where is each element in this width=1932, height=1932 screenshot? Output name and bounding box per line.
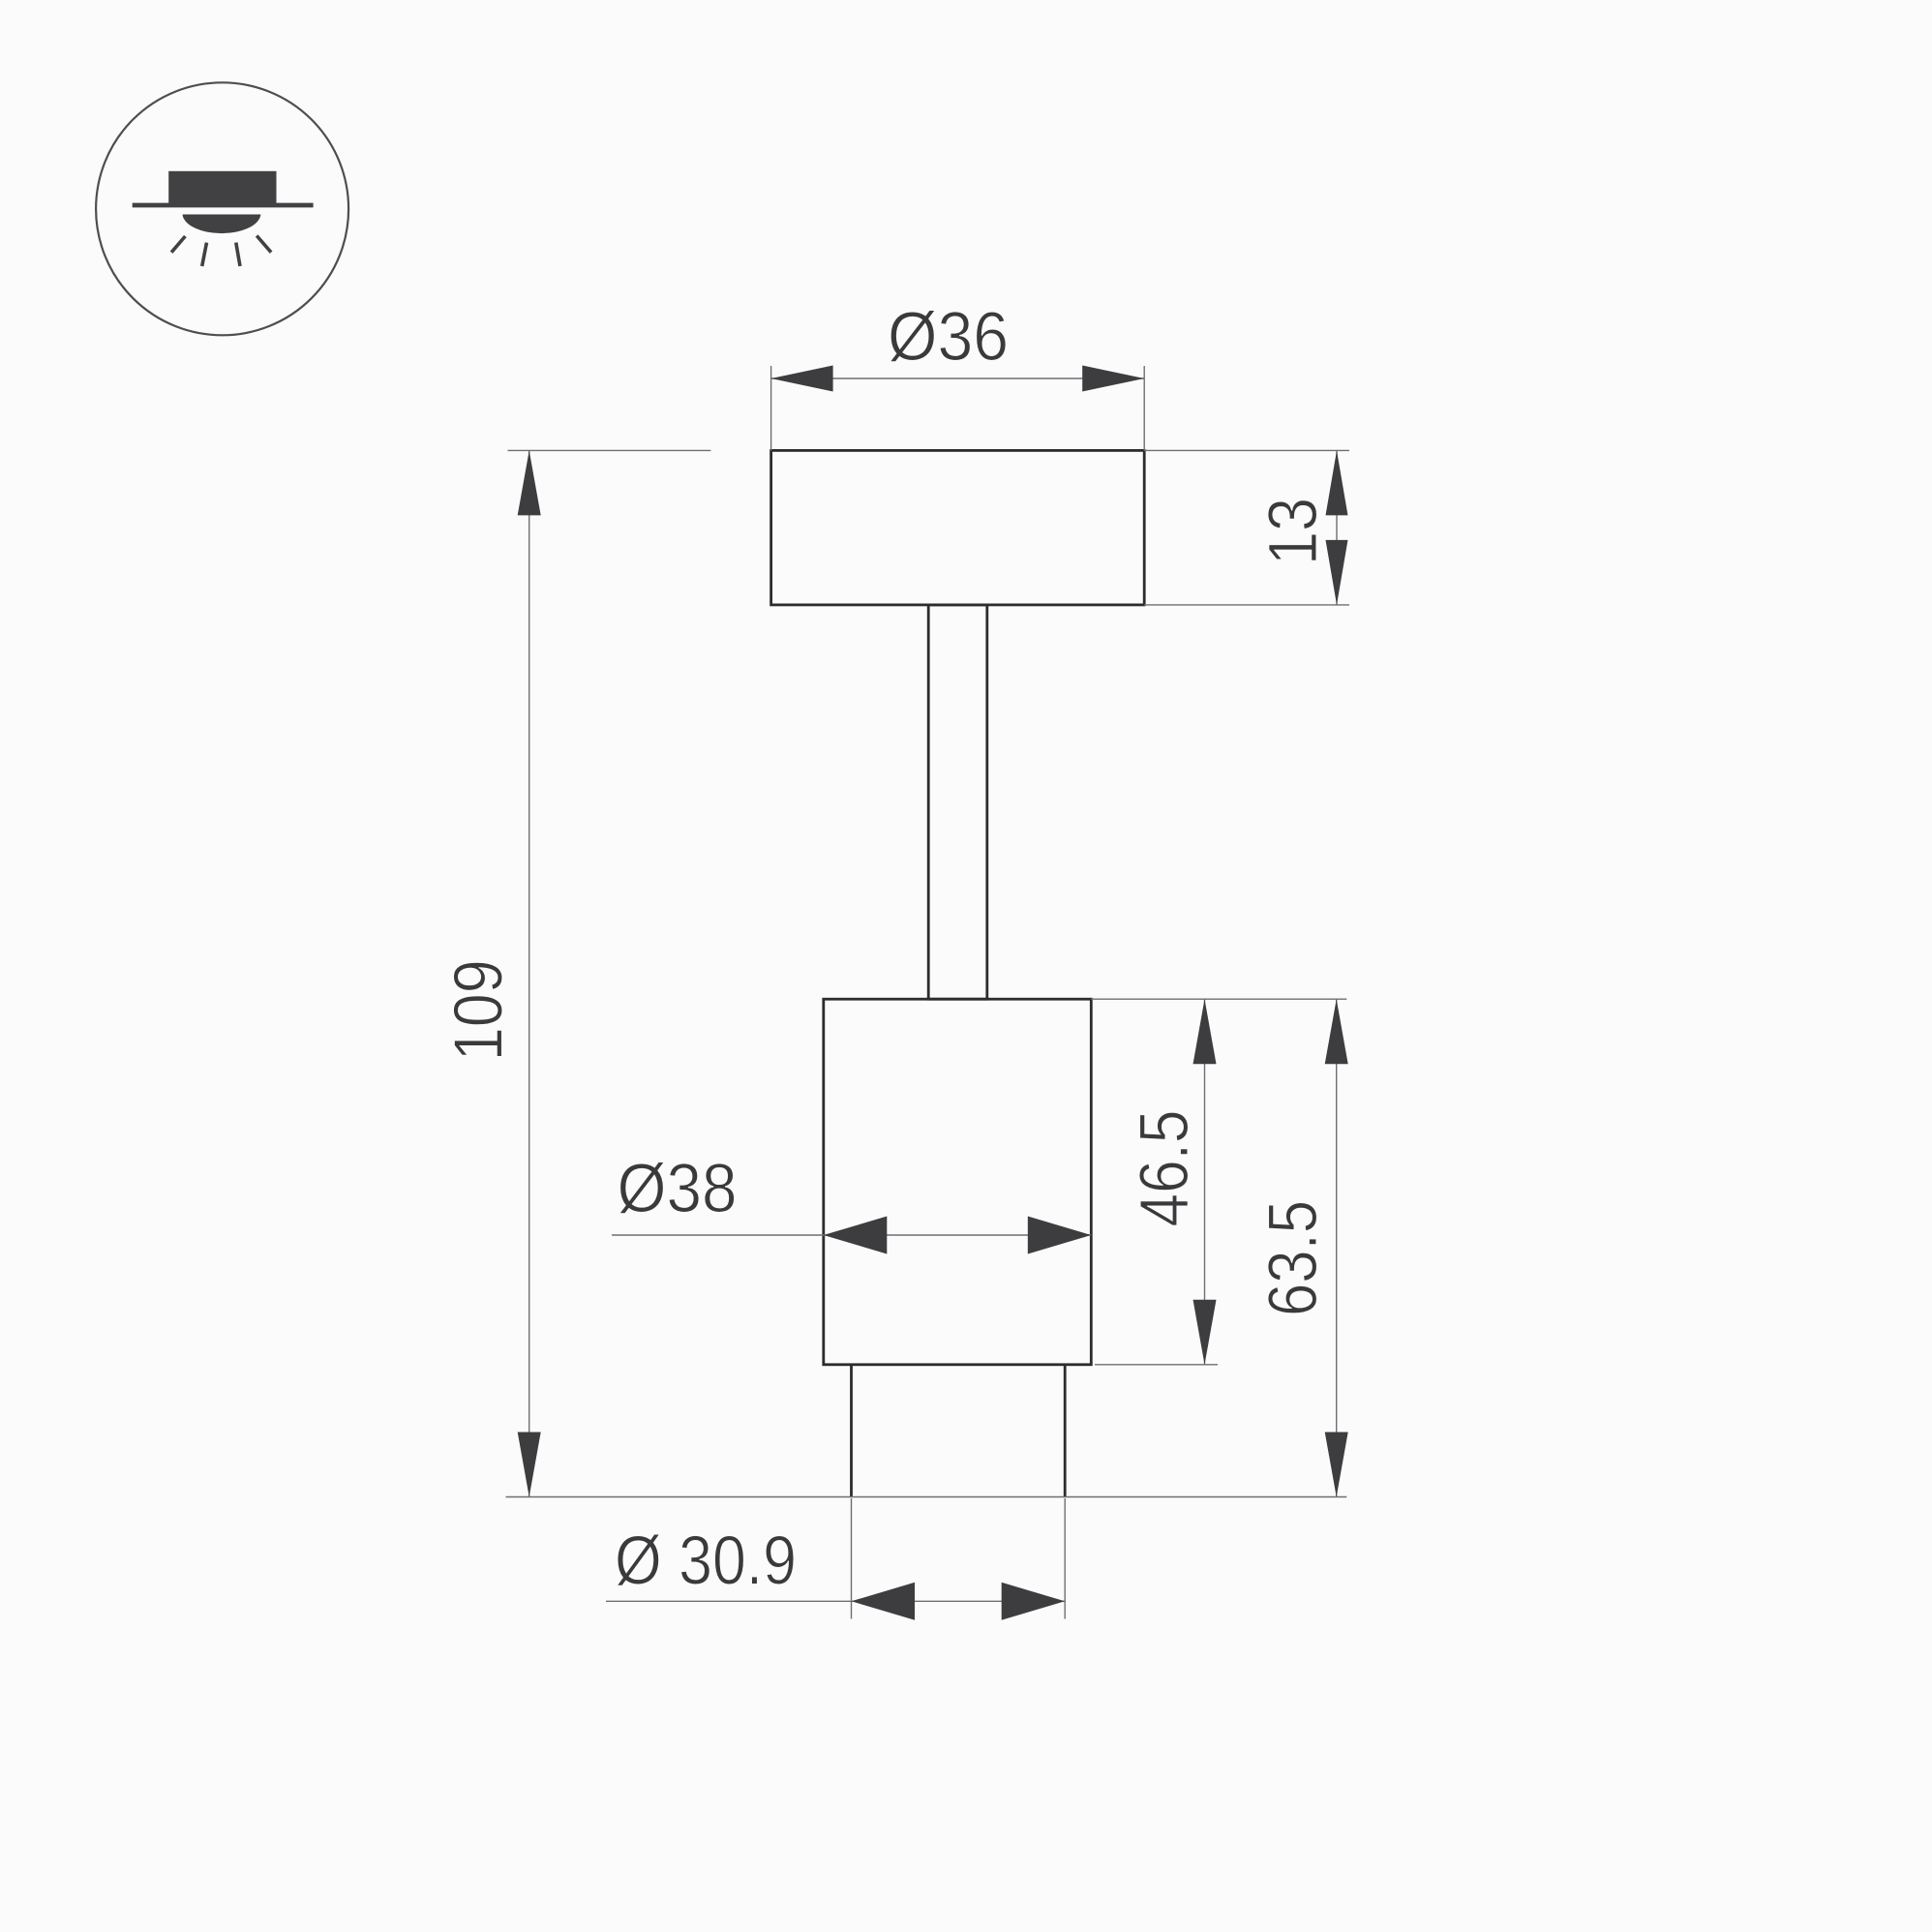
svg-text:13: 13 <box>1255 498 1332 565</box>
svg-text:Ø 30.9: Ø 30.9 <box>615 1524 797 1600</box>
svg-text:46.5: 46.5 <box>1127 1110 1203 1227</box>
svg-text:Ø38: Ø38 <box>618 1151 738 1227</box>
svg-text:63.5: 63.5 <box>1255 1200 1332 1316</box>
svg-text:Ø36: Ø36 <box>888 299 1009 376</box>
svg-text:109: 109 <box>441 959 518 1061</box>
